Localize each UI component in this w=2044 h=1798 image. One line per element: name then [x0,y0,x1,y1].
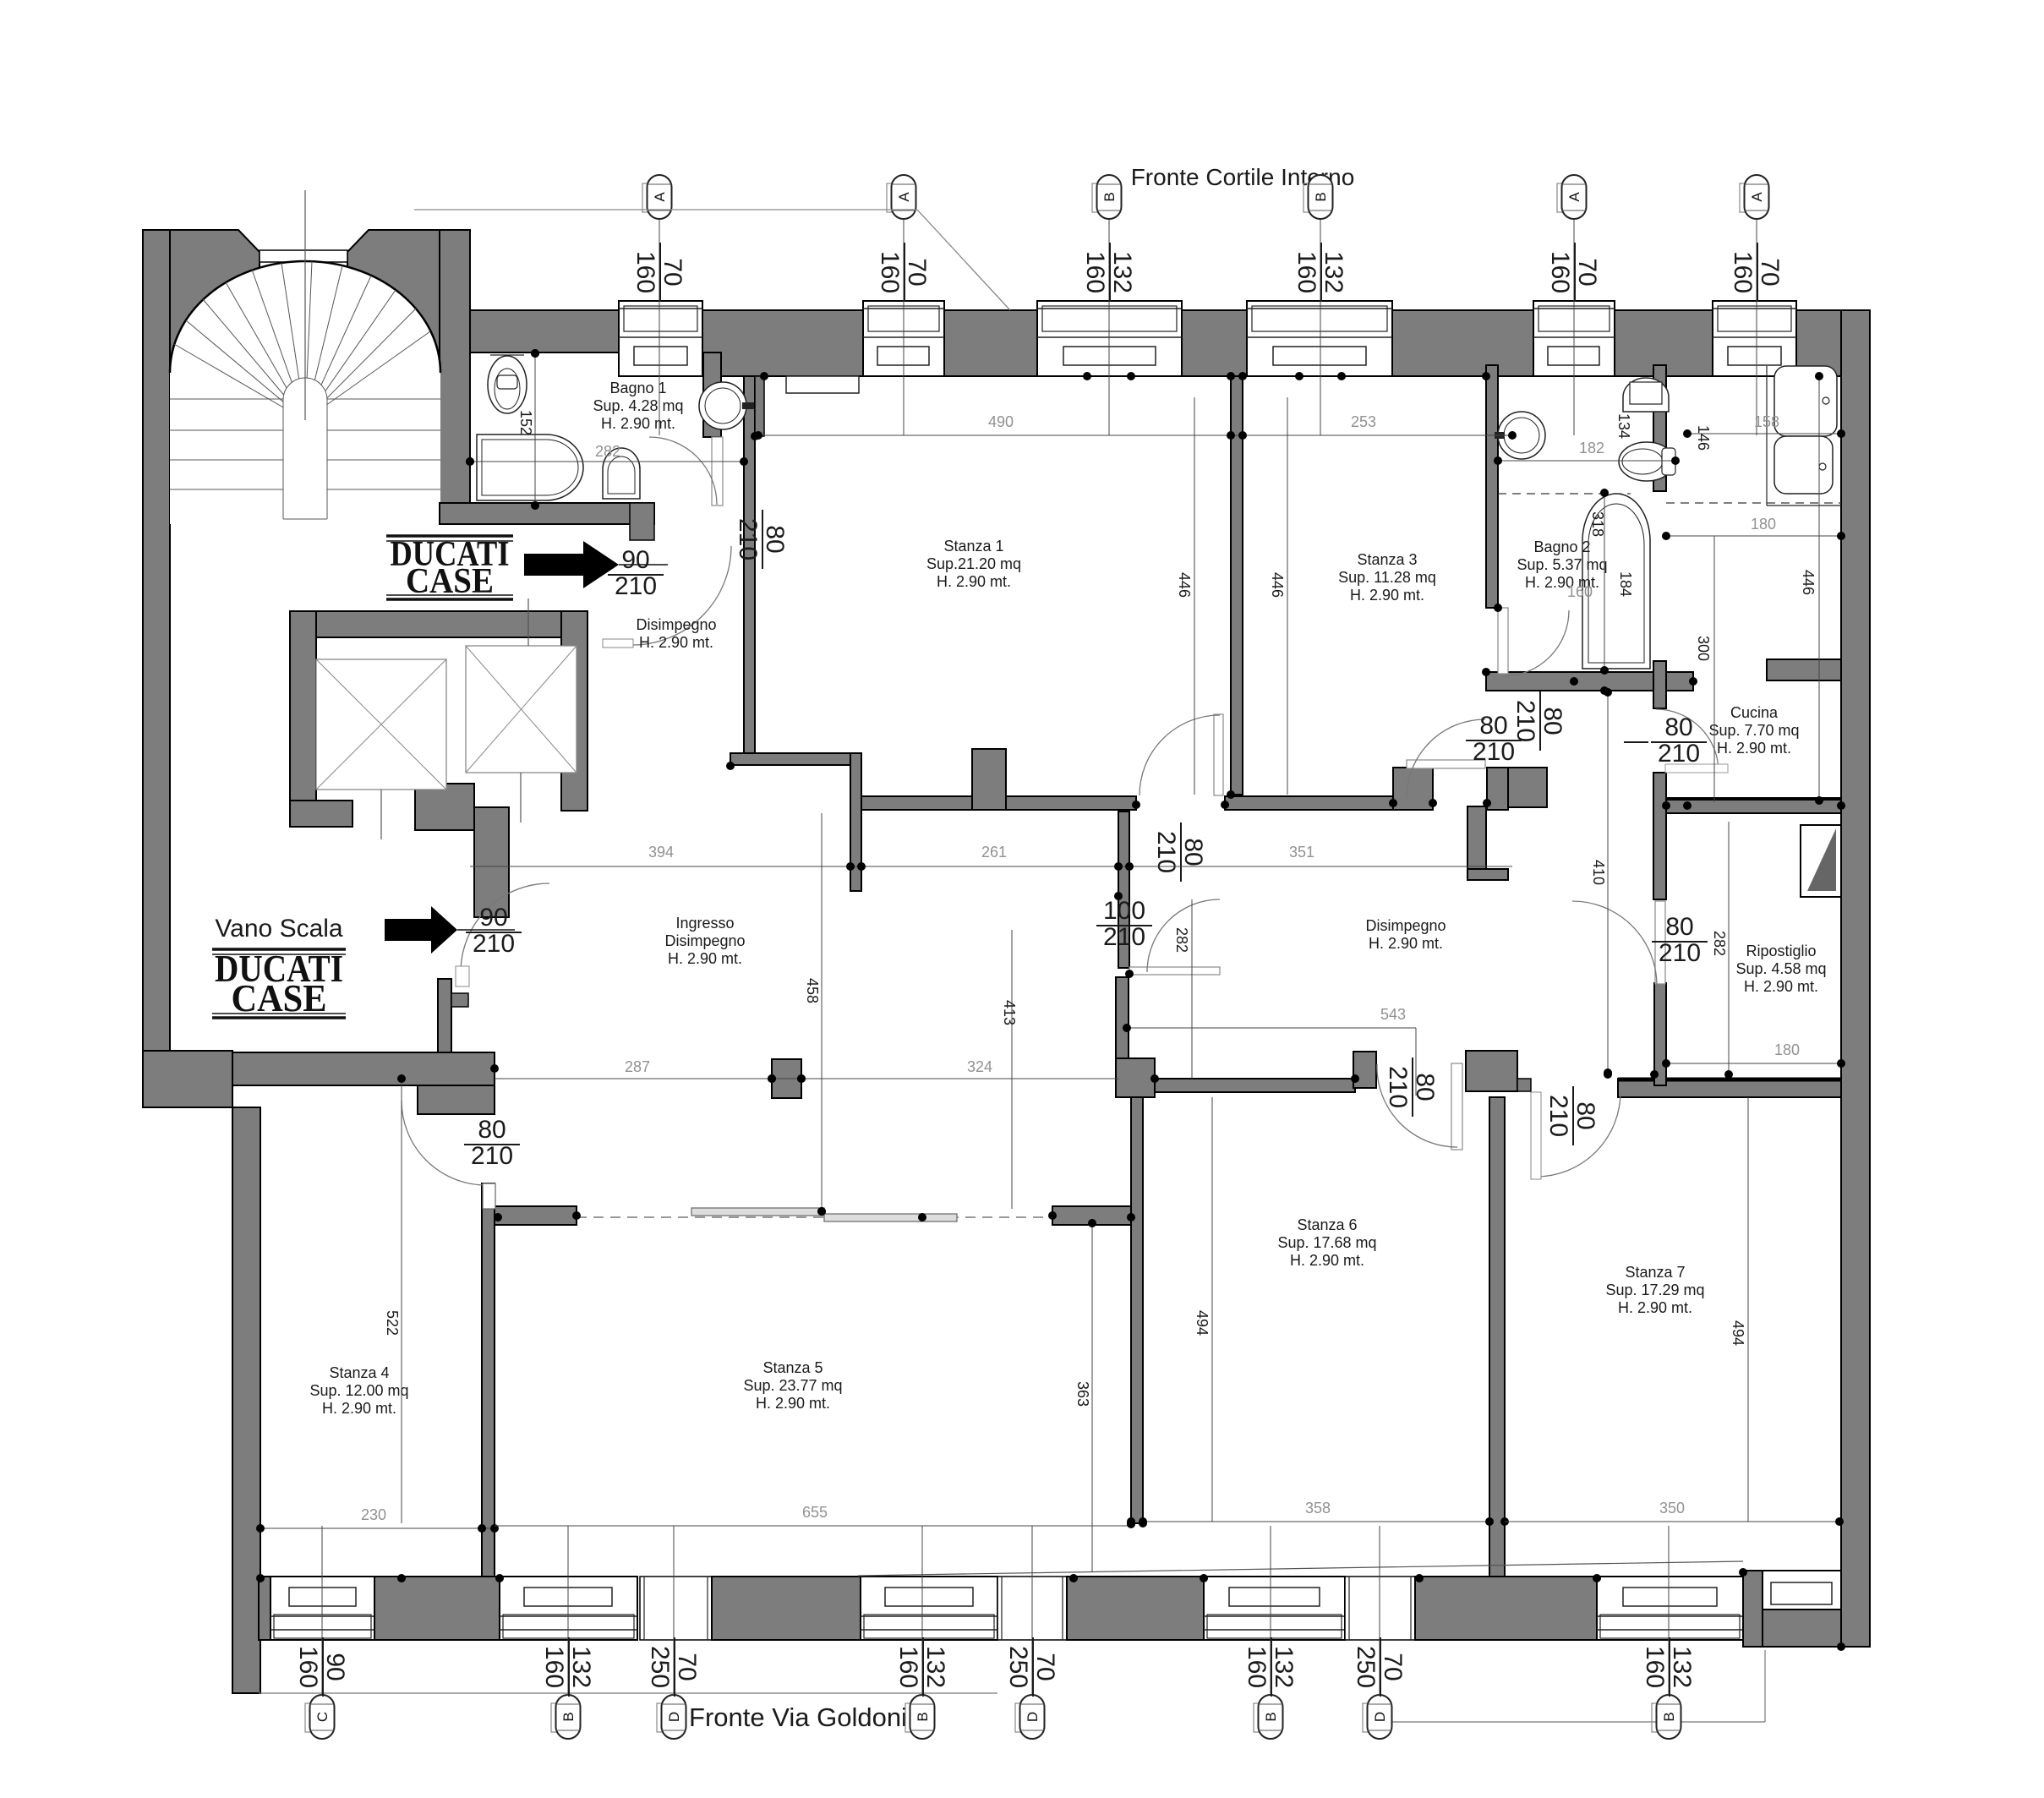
svg-text:80: 80 [1538,707,1566,735]
svg-text:152: 152 [517,410,534,435]
svg-text:210: 210 [1544,1095,1572,1137]
svg-text:490: 490 [988,413,1014,430]
svg-text:494: 494 [1194,1310,1211,1336]
svg-text:146: 146 [1695,425,1712,451]
svg-text:H. 2.90 mt.: H. 2.90 mt. [639,634,713,651]
svg-text:Ripostiglio: Ripostiglio [1746,943,1816,959]
svg-text:282: 282 [1711,931,1728,956]
svg-text:H. 2.90 mt.: H. 2.90 mt. [937,573,1011,590]
svg-text:210: 210 [1473,738,1515,766]
svg-text:100: 100 [1103,897,1145,925]
svg-text:90: 90 [321,1653,349,1681]
svg-text:210: 210 [615,572,657,600]
svg-text:80: 80 [1571,1101,1599,1129]
svg-text:132: 132 [921,1646,949,1688]
svg-text:210: 210 [1659,939,1701,967]
svg-text:160: 160 [1567,583,1593,600]
svg-text:70: 70 [673,1653,701,1681]
svg-text:B: B [1263,1712,1279,1721]
svg-text:80: 80 [1179,838,1207,866]
svg-text:A: A [896,192,912,202]
svg-text:Sup. 12.00 mq: Sup. 12.00 mq [309,1382,408,1399]
svg-text:413: 413 [1001,1000,1018,1025]
svg-text:132: 132 [1668,1646,1696,1688]
svg-text:158: 158 [1754,413,1779,430]
svg-text:160: 160 [1293,251,1320,293]
svg-text:350: 350 [1659,1500,1685,1517]
svg-text:160: 160 [1243,1646,1271,1688]
svg-text:H. 2.90 mt.: H. 2.90 mt. [1290,1252,1364,1269]
svg-text:CASE: CASE [232,976,327,1019]
svg-text:D: D [1025,1712,1041,1722]
svg-text:250: 250 [646,1646,674,1688]
svg-text:70: 70 [1756,258,1784,286]
svg-text:182: 182 [1579,440,1604,456]
svg-text:Sup. 4.28 mq: Sup. 4.28 mq [593,397,683,414]
svg-text:Disimpegno: Disimpegno [664,932,745,949]
svg-text:Ingresso: Ingresso [675,915,734,932]
svg-text:Disimpegno: Disimpegno [636,616,716,633]
svg-text:210: 210 [471,1142,513,1170]
svg-text:CASE: CASE [406,562,494,601]
svg-text:80: 80 [1411,1073,1439,1101]
svg-text:D: D [1372,1712,1388,1722]
svg-text:B: B [1313,192,1329,201]
svg-text:180: 180 [1751,516,1776,533]
svg-text:Cucina: Cucina [1730,704,1779,721]
svg-text:394: 394 [648,844,674,861]
svg-text:90: 90 [479,904,507,932]
svg-text:80: 80 [761,525,789,553]
svg-text:446: 446 [1269,572,1286,598]
svg-text:160: 160 [894,1646,922,1688]
svg-text:H. 2.90 mt.: H. 2.90 mt. [1744,978,1818,995]
svg-text:410: 410 [1590,860,1607,885]
svg-text:446: 446 [1176,572,1193,598]
svg-text:522: 522 [384,1310,401,1336]
svg-text:160: 160 [876,251,904,293]
svg-text:282: 282 [595,443,620,460]
svg-text:B: B [915,1712,931,1721]
svg-text:210: 210 [1384,1066,1412,1108]
svg-text:70: 70 [1573,258,1601,286]
svg-text:80: 80 [1665,913,1693,941]
svg-text:C: C [314,1712,331,1722]
svg-text:210: 210 [1152,831,1180,873]
svg-text:655: 655 [802,1504,828,1521]
svg-text:H. 2.90 mt.: H. 2.90 mt. [668,950,742,967]
svg-text:A: A [652,192,668,202]
svg-text:Sup. 17.68 mq: Sup. 17.68 mq [1277,1234,1376,1251]
svg-text:318: 318 [1589,511,1606,537]
svg-text:70: 70 [903,258,931,286]
svg-text:250: 250 [1004,1646,1032,1688]
svg-text:Stanza 3: Stanza 3 [1357,551,1417,568]
svg-text:210: 210 [473,930,515,958]
svg-text:160: 160 [540,1646,568,1688]
svg-text:B: B [1101,192,1118,201]
svg-text:184: 184 [1617,571,1634,597]
svg-text:Sup. 4.58 mq: Sup. 4.58 mq [1735,960,1826,977]
svg-text:H. 2.90 mt.: H. 2.90 mt. [322,1400,396,1417]
svg-text:458: 458 [804,978,821,1003]
svg-text:Fronte Via Goldoni: Fronte Via Goldoni [689,1702,907,1732]
svg-text:80: 80 [1664,713,1692,741]
svg-text:210: 210 [1511,700,1539,742]
svg-text:70: 70 [659,258,686,286]
svg-text:Stanza 4: Stanza 4 [329,1364,389,1381]
svg-text:H. 2.90 mt.: H. 2.90 mt. [1350,587,1424,604]
svg-text:80: 80 [1479,712,1507,740]
svg-text:160: 160 [1641,1646,1669,1688]
svg-text:324: 324 [967,1058,992,1075]
svg-text:Bagno 1: Bagno 1 [609,380,666,396]
svg-text:210: 210 [734,518,762,560]
svg-text:H. 2.90 mt.: H. 2.90 mt. [601,415,675,432]
svg-text:160: 160 [631,251,659,293]
svg-text:494: 494 [1730,1320,1746,1346]
svg-text:160: 160 [1546,251,1574,293]
svg-text:Sup. 23.77 mq: Sup. 23.77 mq [743,1377,842,1394]
svg-text:H. 2.90 mt.: H. 2.90 mt. [1618,1299,1692,1316]
svg-text:363: 363 [1074,1381,1091,1407]
svg-text:B: B [560,1712,577,1721]
svg-text:160: 160 [294,1646,322,1688]
svg-text:180: 180 [1774,1041,1800,1058]
svg-text:90: 90 [621,546,649,574]
svg-text:Sup. 11.28 mq: Sup. 11.28 mq [1338,569,1436,586]
svg-text:282: 282 [1173,927,1190,953]
svg-text:Sup.21.20 mq: Sup.21.20 mq [926,555,1021,572]
svg-text:132: 132 [1270,1646,1298,1688]
svg-text:358: 358 [1305,1500,1331,1517]
svg-text:287: 287 [625,1058,650,1075]
svg-text:230: 230 [361,1506,386,1523]
svg-text:261: 261 [981,844,1007,861]
svg-text:A: A [1566,192,1582,202]
svg-text:80: 80 [478,1116,506,1144]
svg-text:H. 2.90 mt.: H. 2.90 mt. [756,1395,830,1412]
svg-text:250: 250 [1352,1646,1380,1688]
svg-text:Disimpegno: Disimpegno [1365,917,1446,934]
svg-text:300: 300 [1695,636,1712,661]
svg-text:253: 253 [1351,413,1376,430]
svg-text:D: D [666,1712,682,1722]
svg-text:210: 210 [1658,740,1700,768]
svg-text:160: 160 [1729,251,1757,293]
svg-text:Stanza 5: Stanza 5 [762,1359,823,1376]
svg-text:Bagno 2: Bagno 2 [1533,538,1590,555]
svg-text:A: A [1749,192,1765,202]
svg-text:132: 132 [567,1646,595,1688]
svg-text:543: 543 [1380,1006,1406,1023]
svg-text:210: 210 [1103,923,1145,951]
svg-text:Sup. 17.29 mq: Sup. 17.29 mq [1605,1282,1704,1298]
svg-text:B: B [1661,1712,1677,1721]
svg-text:Sup. 7.70 mq: Sup. 7.70 mq [1708,722,1799,739]
svg-text:351: 351 [1289,844,1314,861]
svg-text:70: 70 [1379,1653,1407,1681]
svg-text:Stanza 6: Stanza 6 [1297,1216,1357,1233]
svg-text:H. 2.90 mt.: H. 2.90 mt. [1369,935,1443,952]
svg-text:446: 446 [1800,570,1817,595]
svg-text:160: 160 [1081,251,1109,293]
svg-text:H. 2.90 mt.: H. 2.90 mt. [1717,740,1791,757]
svg-text:Vano Scala: Vano Scala [215,915,343,943]
svg-text:134: 134 [1615,413,1632,439]
svg-text:132: 132 [1320,251,1347,293]
svg-text:132: 132 [1108,251,1136,293]
svg-text:Stanza 7: Stanza 7 [1625,1264,1685,1281]
svg-text:70: 70 [1031,1653,1059,1681]
svg-text:Sup. 5.37 mq: Sup. 5.37 mq [1517,556,1607,573]
svg-text:Stanza 1: Stanza 1 [943,538,1003,555]
